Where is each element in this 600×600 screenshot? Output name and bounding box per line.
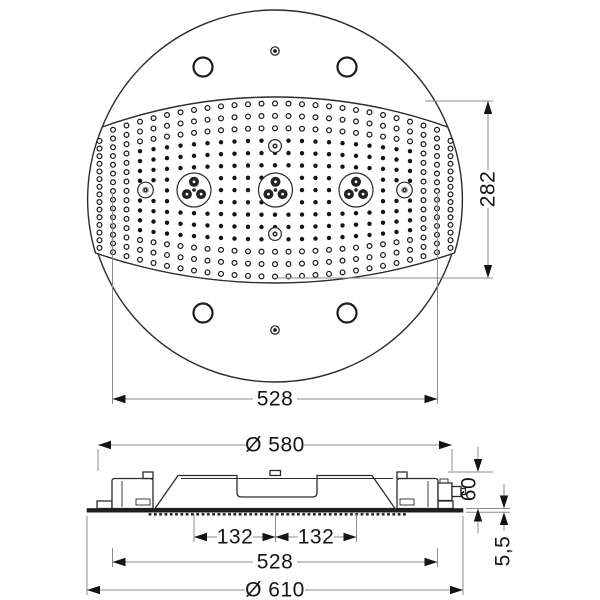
right-box-foot — [400, 499, 414, 505]
left-mount-tab — [143, 472, 153, 479]
dim-face-width-side-label: 528 — [257, 551, 294, 574]
left-pedestal — [97, 501, 112, 509]
dim-face-height-label: 282 — [477, 171, 500, 208]
connector-block — [438, 483, 452, 501]
dim-face-width-top-label: 528 — [257, 388, 294, 411]
dim-nozzle-spacing-right-label: 132 — [298, 526, 335, 549]
right-mount-tab — [397, 472, 407, 479]
technical-drawing: 528 282 Ø 580 60 5,5 132 132 528 Ø 610 — [0, 0, 600, 600]
dim-housing-height-label: 60 — [458, 477, 481, 501]
left-box-foot — [136, 499, 150, 505]
right-pedestal — [438, 501, 453, 509]
dim-plate-thickness-label: 5,5 — [492, 536, 515, 567]
spray-rosettes — [177, 173, 373, 207]
top-view — [88, 10, 463, 382]
dim-housing-diameter-label: Ø 580 — [245, 434, 305, 457]
drawing-canvas: 528 282 Ø 580 60 5,5 132 132 528 Ø 610 — [0, 0, 600, 600]
side-view — [87, 471, 466, 516]
housing-body — [155, 476, 395, 509]
dim-nozzle-spacing-left-label: 132 — [217, 526, 254, 549]
ceiling-plate — [87, 509, 463, 513]
center-tab — [270, 471, 281, 476]
dim-plate-diameter-label: Ø 610 — [245, 579, 305, 600]
plate-nozzle-dashes — [149, 513, 406, 516]
